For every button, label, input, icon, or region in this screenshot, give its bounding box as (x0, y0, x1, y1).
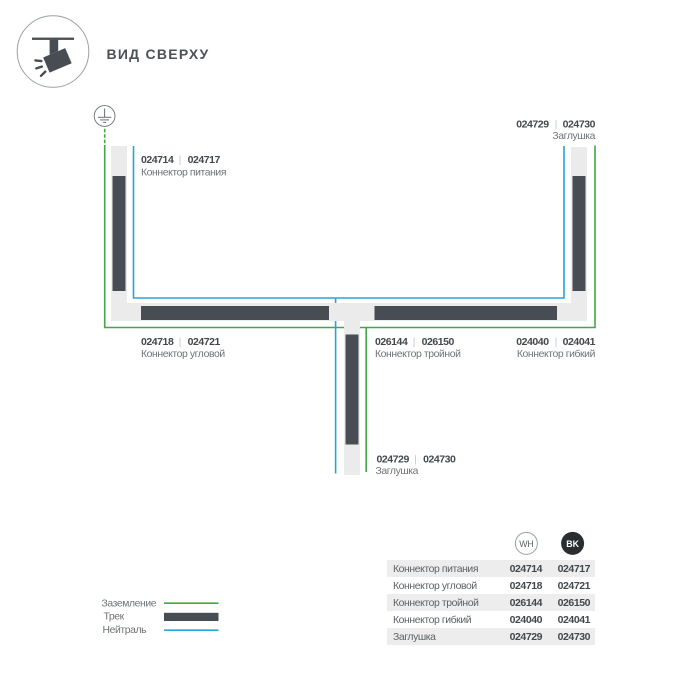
svg-text:|: | (413, 337, 416, 348)
svg-text:024718: 024718 (510, 580, 543, 592)
svg-text:024041: 024041 (558, 614, 591, 626)
svg-text:024714: 024714 (510, 563, 543, 575)
svg-text:Коннектор питания: Коннектор питания (393, 564, 478, 575)
svg-text:Заземление: Заземление (102, 598, 157, 609)
svg-text:026144: 026144 (510, 597, 543, 609)
svg-text:024730: 024730 (558, 631, 591, 643)
svg-text:024040: 024040 (510, 614, 543, 626)
svg-text:024717: 024717 (188, 154, 221, 166)
svg-text:024718: 024718 (141, 336, 174, 348)
svg-text:Заглушка: Заглушка (552, 131, 595, 142)
svg-text:Трек: Трек (104, 612, 125, 623)
svg-text:|: | (555, 119, 558, 130)
svg-text:|: | (555, 337, 558, 348)
svg-text:024729: 024729 (377, 454, 410, 466)
svg-text:024717: 024717 (558, 563, 591, 575)
svg-text:Коннектор угловой: Коннектор угловой (141, 349, 225, 360)
svg-text:|: | (179, 337, 182, 348)
svg-text:WH: WH (519, 539, 533, 549)
svg-text:024721: 024721 (558, 580, 591, 592)
svg-text:Заглушка: Заглушка (376, 466, 419, 477)
svg-text:024041: 024041 (563, 336, 596, 348)
svg-text:ВИД СВЕРХУ: ВИД СВЕРХУ (107, 46, 210, 62)
svg-text:BK: BK (566, 539, 579, 549)
svg-text:Коннектор угловой: Коннектор угловой (393, 581, 477, 592)
svg-text:Коннектор тройной: Коннектор тройной (393, 598, 479, 609)
svg-text:Коннектор питания: Коннектор питания (141, 167, 226, 178)
svg-text:026144: 026144 (375, 336, 408, 348)
svg-text:Заглушка: Заглушка (393, 632, 436, 643)
svg-text:024040: 024040 (516, 336, 549, 348)
svg-text:026150: 026150 (422, 336, 455, 348)
svg-text:|: | (414, 455, 417, 466)
svg-text:|: | (179, 155, 182, 166)
svg-text:026150: 026150 (558, 597, 591, 609)
svg-text:Нейтраль: Нейтраль (103, 625, 147, 636)
svg-text:Коннектор гибкий: Коннектор гибкий (517, 348, 596, 360)
svg-text:024721: 024721 (188, 336, 221, 348)
svg-text:024729: 024729 (516, 118, 549, 130)
svg-text:024730: 024730 (423, 454, 456, 466)
svg-text:024730: 024730 (563, 118, 596, 130)
svg-text:024729: 024729 (510, 631, 543, 643)
svg-text:Коннектор тройной: Коннектор тройной (375, 349, 461, 360)
svg-text:Коннектор гибкий: Коннектор гибкий (393, 614, 472, 626)
svg-text:024714: 024714 (141, 154, 174, 166)
